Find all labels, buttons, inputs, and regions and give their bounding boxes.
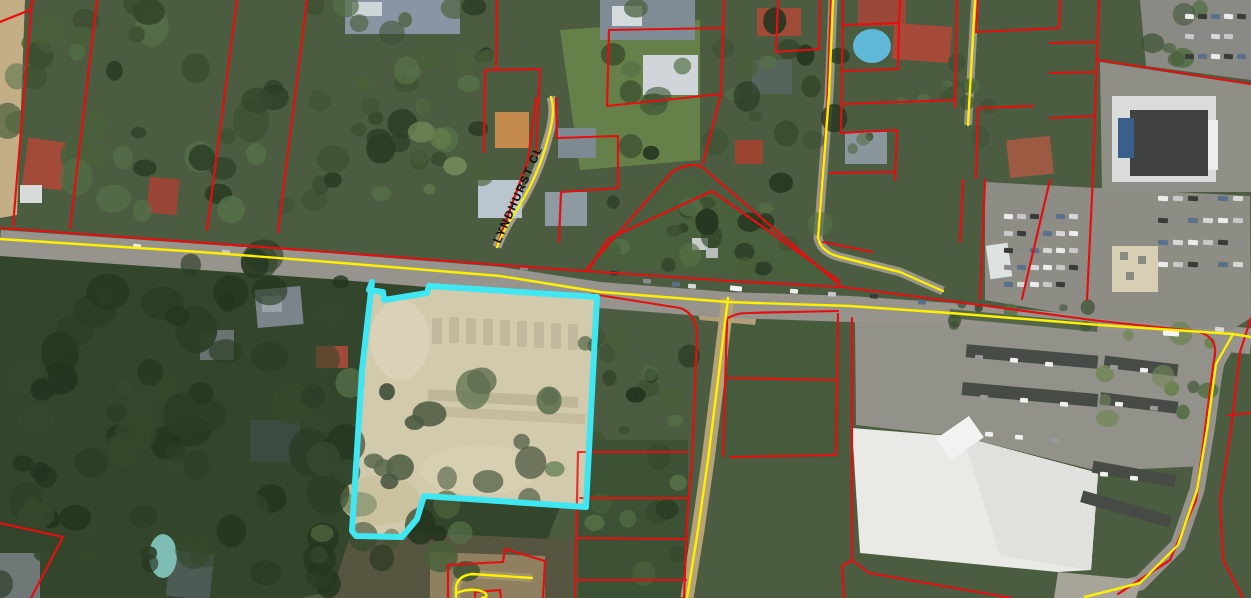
cream-building <box>1112 246 1158 292</box>
swimming-pool <box>853 29 891 63</box>
map-canvas[interactable]: LYNDHURST CL <box>0 0 1251 598</box>
selected-parcel-highlight[interactable] <box>352 282 597 537</box>
green-parcel-b <box>722 310 840 458</box>
plaza-building <box>1112 96 1218 182</box>
